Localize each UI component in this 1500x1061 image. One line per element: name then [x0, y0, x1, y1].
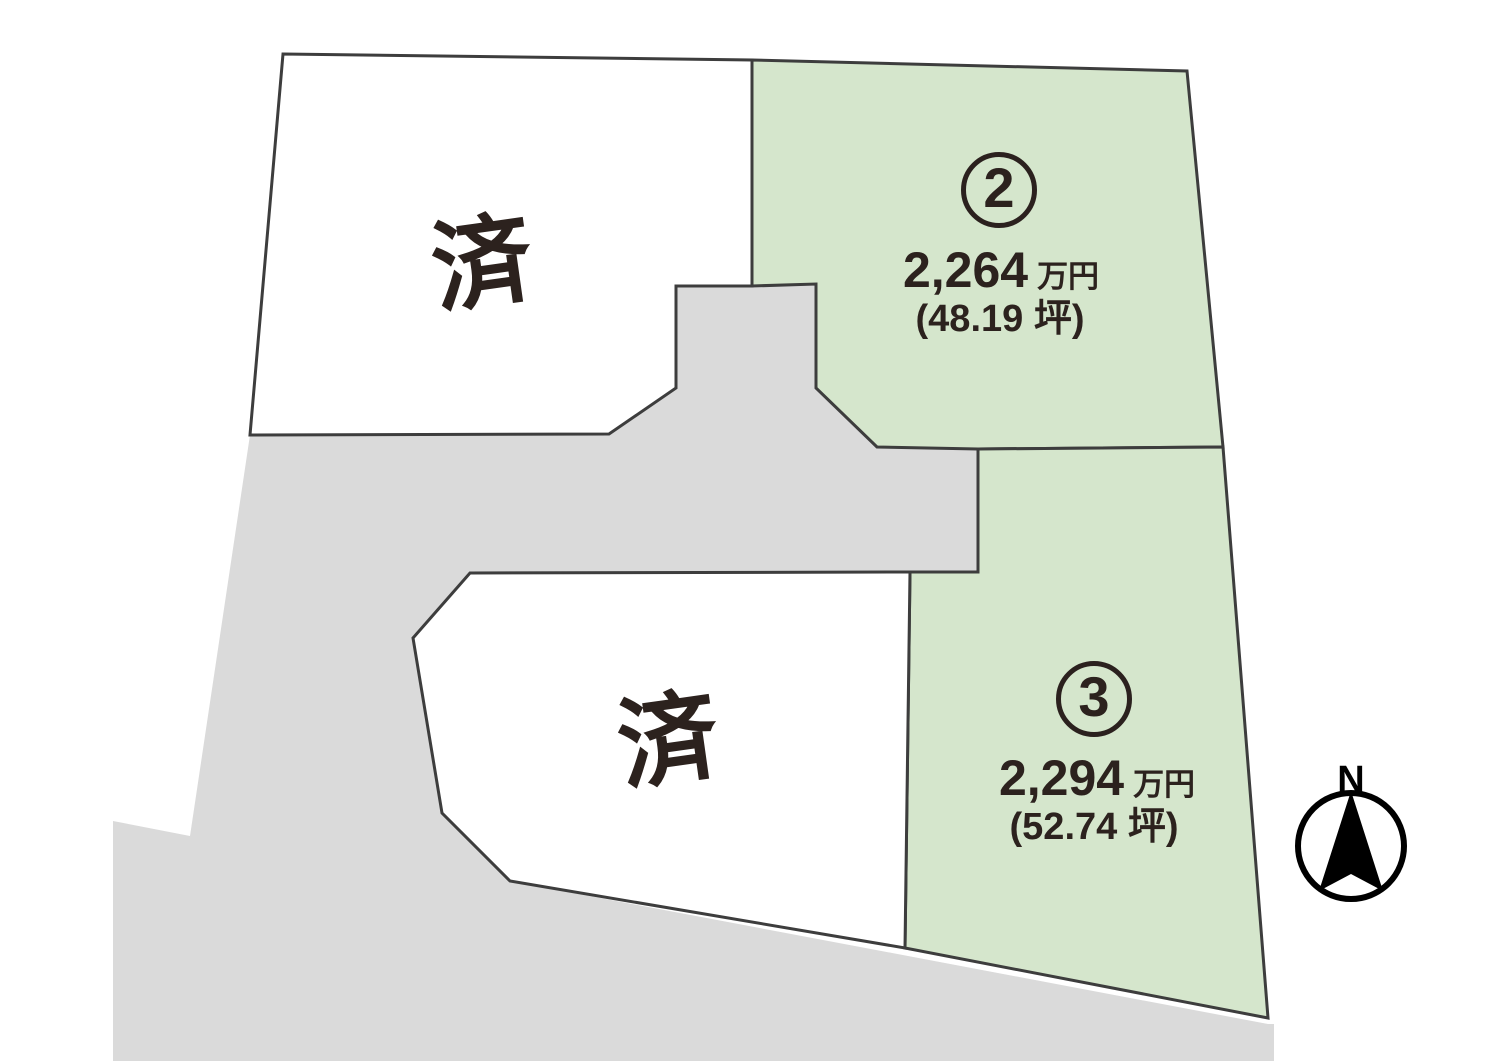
lot-3-price-value: 2,294: [999, 753, 1124, 803]
lot-3-badge: 3: [1056, 661, 1132, 737]
lot-3-price-unit: 万円: [1133, 769, 1195, 800]
lot-2-badge: 2: [961, 152, 1037, 228]
lot-2-price-value: 2,264: [903, 245, 1028, 295]
lot-3-number: 3: [1078, 669, 1109, 725]
site-plan-svg: N: [0, 0, 1500, 1061]
north-arrow-icon: [1319, 791, 1383, 891]
compass: N: [1298, 759, 1404, 899]
lot-2-price: 2,264 万円: [903, 245, 1099, 295]
lot-3-area-label: (52.74 坪): [1010, 808, 1179, 846]
lot-sold-lower-label: 済: [607, 653, 726, 811]
compass-north-label: N: [1337, 759, 1364, 801]
site-plan: N 済 2 2,264 万円 (48.19 坪) 3 2,294 万円 (52.…: [0, 0, 1500, 1061]
lot-3-price: 2,294 万円: [999, 753, 1195, 803]
lot-sold-upper-label: 済: [421, 176, 540, 334]
lot-2-area-label: (48.19 坪): [916, 300, 1085, 338]
lot-2-number: 2: [983, 160, 1014, 216]
lot-2-price-unit: 万円: [1037, 261, 1099, 292]
